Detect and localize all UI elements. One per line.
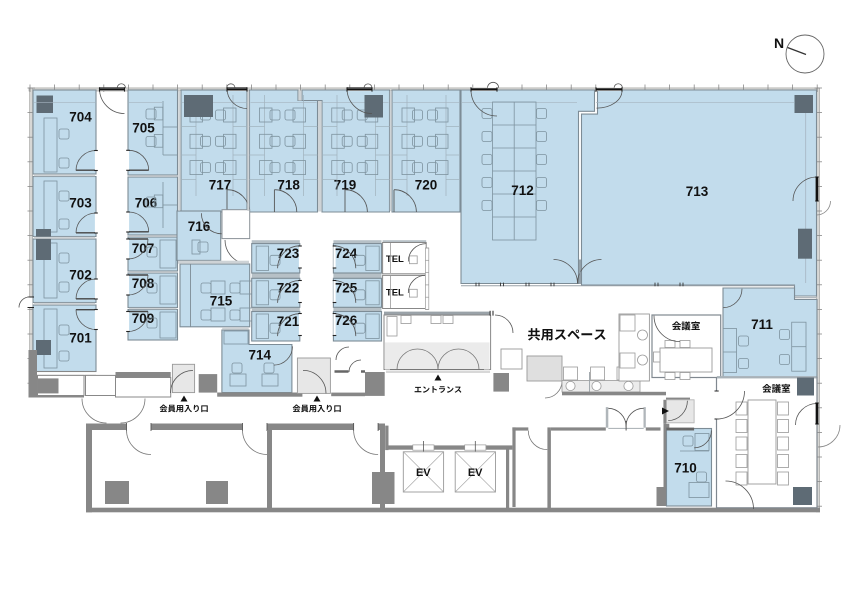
svg-text:TEL: TEL — [386, 287, 404, 298]
svg-text:711: 711 — [751, 317, 773, 332]
svg-text:712: 712 — [511, 183, 534, 198]
svg-text:726: 726 — [335, 313, 358, 328]
svg-text:714: 714 — [249, 347, 272, 362]
svg-text:EV: EV — [468, 467, 483, 479]
svg-text:725: 725 — [335, 280, 358, 295]
svg-text:701: 701 — [69, 330, 92, 345]
svg-text:720: 720 — [415, 177, 438, 192]
svg-text:716: 716 — [188, 219, 211, 234]
svg-text:707: 707 — [132, 241, 155, 256]
svg-text:713: 713 — [686, 184, 709, 199]
svg-text:717: 717 — [209, 177, 232, 192]
svg-text:705: 705 — [132, 120, 155, 135]
svg-text:EV: EV — [416, 467, 431, 479]
svg-text:N: N — [774, 35, 784, 51]
svg-text:710: 710 — [674, 460, 697, 475]
svg-text:704: 704 — [69, 110, 92, 125]
svg-text:724: 724 — [335, 246, 358, 261]
svg-text:718: 718 — [277, 177, 300, 192]
svg-text:703: 703 — [69, 195, 92, 210]
svg-text:715: 715 — [210, 293, 233, 308]
svg-text:TEL: TEL — [386, 254, 404, 265]
